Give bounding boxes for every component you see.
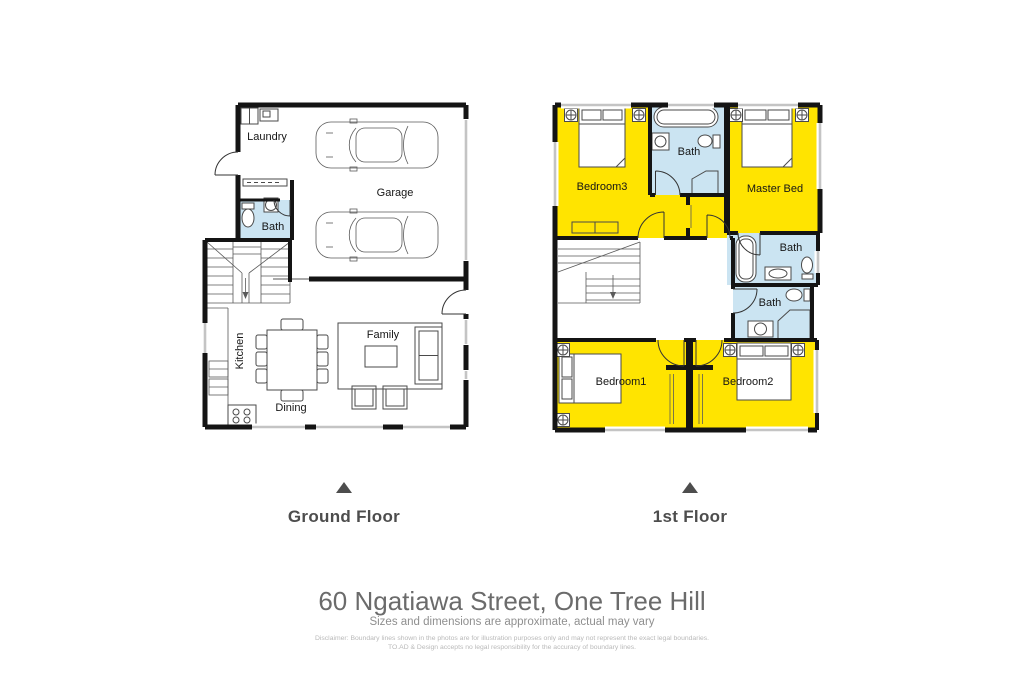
downlight-icon [796, 109, 809, 122]
room-label-bath-low: Bath [759, 297, 782, 309]
downlight-icon [730, 109, 743, 122]
toilet-icon [802, 257, 813, 273]
sofa-icon [415, 327, 442, 384]
room-label-bedroom3: Bedroom3 [577, 181, 628, 193]
first-floor-label: 1st Floor [590, 507, 790, 527]
up-triangle-icon [682, 482, 698, 493]
vanity-icon [243, 179, 287, 186]
bed-icon-bedroom3 [579, 107, 625, 167]
address-title: 60 Ngatiawa Street, One Tree Hill [0, 586, 1024, 617]
floorplan-canvas: Laundry Garage Bath Kitchen Dining Famil… [0, 0, 1024, 683]
room-label-bedroom2: Bedroom2 [723, 376, 774, 388]
laundry-sink-icon [241, 108, 278, 124]
car-icon [316, 119, 438, 171]
ground-walls [205, 105, 466, 427]
room-label-bath-top: Bath [678, 146, 701, 158]
bed-icon-bedroom2 [737, 343, 791, 400]
room-label-family: Family [367, 329, 400, 341]
first-floor-caption: 1st Floor [590, 480, 790, 527]
downlight-icon [557, 344, 570, 357]
ground-floor-plan: Laundry Garage Bath Kitchen Dining Famil… [197, 93, 472, 435]
stove-icon [228, 405, 256, 426]
room-label-master: Master Bed [747, 183, 803, 195]
toilet-icon [242, 203, 254, 227]
room-label-bath: Bath [262, 221, 285, 233]
closet-wall [686, 340, 693, 430]
first-stairs [558, 242, 640, 303]
ground-floor-label: Ground Floor [244, 507, 444, 527]
disclaimer-line-1: Disclaimer: Boundary lines shown in the … [0, 634, 1024, 643]
bed-icon-master [742, 107, 792, 167]
room-label-kitchen: Kitchen [234, 333, 246, 370]
kitchen-counter [207, 308, 228, 426]
toilet-icon [786, 289, 802, 301]
vestibule [688, 195, 730, 238]
up-triangle-icon [336, 482, 352, 493]
downlight-icon [557, 414, 570, 427]
downlight-icon [633, 109, 646, 122]
ground-floor-caption: Ground Floor [244, 480, 444, 527]
windows [205, 120, 466, 427]
downlight-icon [565, 109, 578, 122]
entry-door [215, 152, 238, 175]
downlight-icon [792, 344, 805, 357]
dimensions-note: Sizes and dimensions are approximate, ac… [0, 616, 1024, 628]
room-label-dining: Dining [275, 402, 306, 414]
disclaimer-text: Disclaimer: Boundary lines shown in the … [0, 634, 1024, 652]
coffee-table-icon [365, 346, 397, 367]
room-label-laundry: Laundry [247, 131, 287, 143]
room-label-bath-mid: Bath [780, 242, 803, 254]
room-label-bedroom1: Bedroom1 [596, 376, 647, 388]
car-icon [316, 209, 438, 261]
family-door [442, 290, 466, 314]
downlight-icon [724, 344, 737, 357]
first-floor-plan: Bedroom3 Bath Master Bed Bath Bath Bedro… [546, 93, 826, 438]
ground-stairs [207, 240, 290, 303]
dining-table-icon [256, 319, 328, 401]
disclaimer-line-2: TO.AD & Design accepts no legal responsi… [0, 643, 1024, 652]
room-label-garage: Garage [377, 187, 414, 199]
